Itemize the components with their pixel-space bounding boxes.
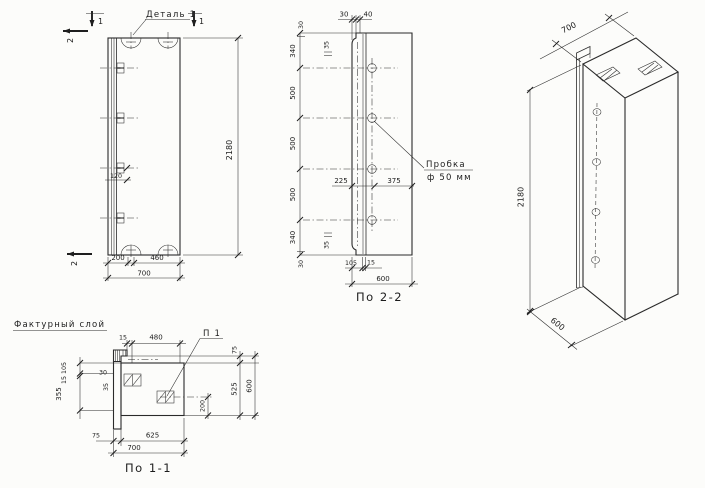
dim-355: 355 <box>55 387 63 400</box>
dim-top-11: 15 480 <box>119 334 186 364</box>
section-mark-1-left: 1 <box>86 11 104 27</box>
section-2-2-view: 340 500 500 500 340 30 35 35 30 30 <box>289 11 473 305</box>
section-1-1-title: По 1-1 <box>125 461 172 475</box>
plug-holes <box>303 58 398 231</box>
dim-525: 525 <box>231 382 239 395</box>
edge-anchors <box>100 63 140 223</box>
dim-right-11: 75 525 600 200 <box>127 346 259 420</box>
dim-500-c: 500 <box>289 188 297 201</box>
plug-callout: Пробка ф 50 мм <box>374 121 473 183</box>
dim-500-b: 500 <box>289 137 297 150</box>
detail-callout: Деталь 1 <box>133 10 196 35</box>
dim-700-front: 700 <box>137 270 150 278</box>
dim-120: 120 <box>110 173 122 180</box>
anchor-details-plan <box>124 374 212 403</box>
dim-sub-edges: 30 35 35 30 <box>297 21 332 268</box>
detail-p1-label: П 1 <box>203 329 221 339</box>
dim-2180-front: 2180 <box>225 140 234 160</box>
front-view: 120 200 460 700 2180 <box>63 10 243 281</box>
dim-step-11: 30 35 <box>99 370 110 392</box>
iso-view: 700 2180 600 <box>517 12 679 350</box>
plug-label-line2: ф 50 мм <box>427 173 472 183</box>
dim-15-left: 15 <box>61 376 68 384</box>
dim-105-22: 105 <box>345 260 357 267</box>
dim-500-a: 500 <box>289 86 297 99</box>
dim-height-front: 2180 <box>183 35 243 258</box>
dim-sub-35-top: 35 <box>324 41 331 49</box>
section-mark-2-bottom: 2 <box>67 252 92 267</box>
dim-axis-position: 225 375 <box>332 177 415 189</box>
iso-dim-width: 700 <box>540 12 634 62</box>
facing-layer-callout: Фактурный слой <box>13 320 107 331</box>
dim-bottom-front: 200 460 700 <box>103 254 185 281</box>
dim-700-bottom: 700 <box>127 444 140 452</box>
dim-left-chain: 340 500 500 500 340 <box>289 30 356 258</box>
iso-dim-2180: 2180 <box>517 187 526 207</box>
lifting-loops <box>121 32 178 257</box>
dim-460: 460 <box>150 254 163 262</box>
dim-600-right: 600 <box>246 379 254 392</box>
section-2-label: 2 <box>66 38 75 43</box>
dim-75-right: 75 <box>232 346 239 354</box>
dim-sub-30-top: 30 <box>298 21 305 29</box>
dim-sub-35-bottom: 35 <box>324 241 331 249</box>
dim-left-11: 105 15 355 <box>55 357 121 419</box>
iso-dim-depth: 600 <box>527 309 623 350</box>
dim-sub-30-bottom: 30 <box>298 260 305 268</box>
dim-35-step: 35 <box>103 383 110 391</box>
blueprint-sheet: 120 200 460 700 2180 <box>0 0 705 488</box>
dim-40-top: 40 <box>364 11 373 19</box>
dim-top-rebate: 30 40 <box>338 11 372 41</box>
dim-600-22: 600 <box>376 275 389 283</box>
dim-340-top: 340 <box>289 44 297 57</box>
dim-30-step: 30 <box>99 370 107 377</box>
dim-15-top11: 15 <box>119 335 127 342</box>
dim-375: 375 <box>387 177 400 185</box>
dim-480: 480 <box>149 334 162 342</box>
dim-75-bottom: 75 <box>92 433 100 440</box>
facing-layer-label: Фактурный слой <box>14 320 105 330</box>
section-1-1-outline <box>114 350 185 429</box>
section-1-label: 1 <box>199 17 204 26</box>
plug-label-line1: Пробка <box>426 160 466 170</box>
section-mark-2-top: 2 <box>63 29 88 44</box>
front-panel-outline <box>108 38 180 255</box>
iso-dim-600: 600 <box>549 316 567 333</box>
iso-plug-holes <box>592 103 602 270</box>
section-2-label: 2 <box>70 261 79 266</box>
section-2-2-outline <box>352 33 412 255</box>
section-1-label: 1 <box>98 17 103 26</box>
dim-30-top: 30 <box>340 11 349 19</box>
iso-top-recesses <box>596 61 662 81</box>
panel-drawing: 120 200 460 700 2180 <box>0 0 705 488</box>
iso-dim-700: 700 <box>560 20 578 35</box>
dim-340-bottom: 340 <box>289 231 297 244</box>
dim-225: 225 <box>334 177 347 185</box>
section-2-2-title: По 2-2 <box>356 290 403 304</box>
dim-200-right: 200 <box>200 400 207 412</box>
section-1-1-view: Фактурный слой П <box>13 320 259 475</box>
dim-bottom-11: 75 625 700 <box>92 418 188 457</box>
dim-625: 625 <box>146 432 159 440</box>
dim-200: 200 <box>111 254 124 262</box>
dim-15-22: 15 <box>367 260 375 267</box>
dim-105-left: 105 <box>61 362 68 374</box>
dim-bottom-section22: 105 15 600 <box>345 257 418 287</box>
detail-1-label: Деталь 1 <box>146 10 196 20</box>
iso-dim-height: 2180 <box>517 65 582 314</box>
iso-body <box>583 38 678 320</box>
